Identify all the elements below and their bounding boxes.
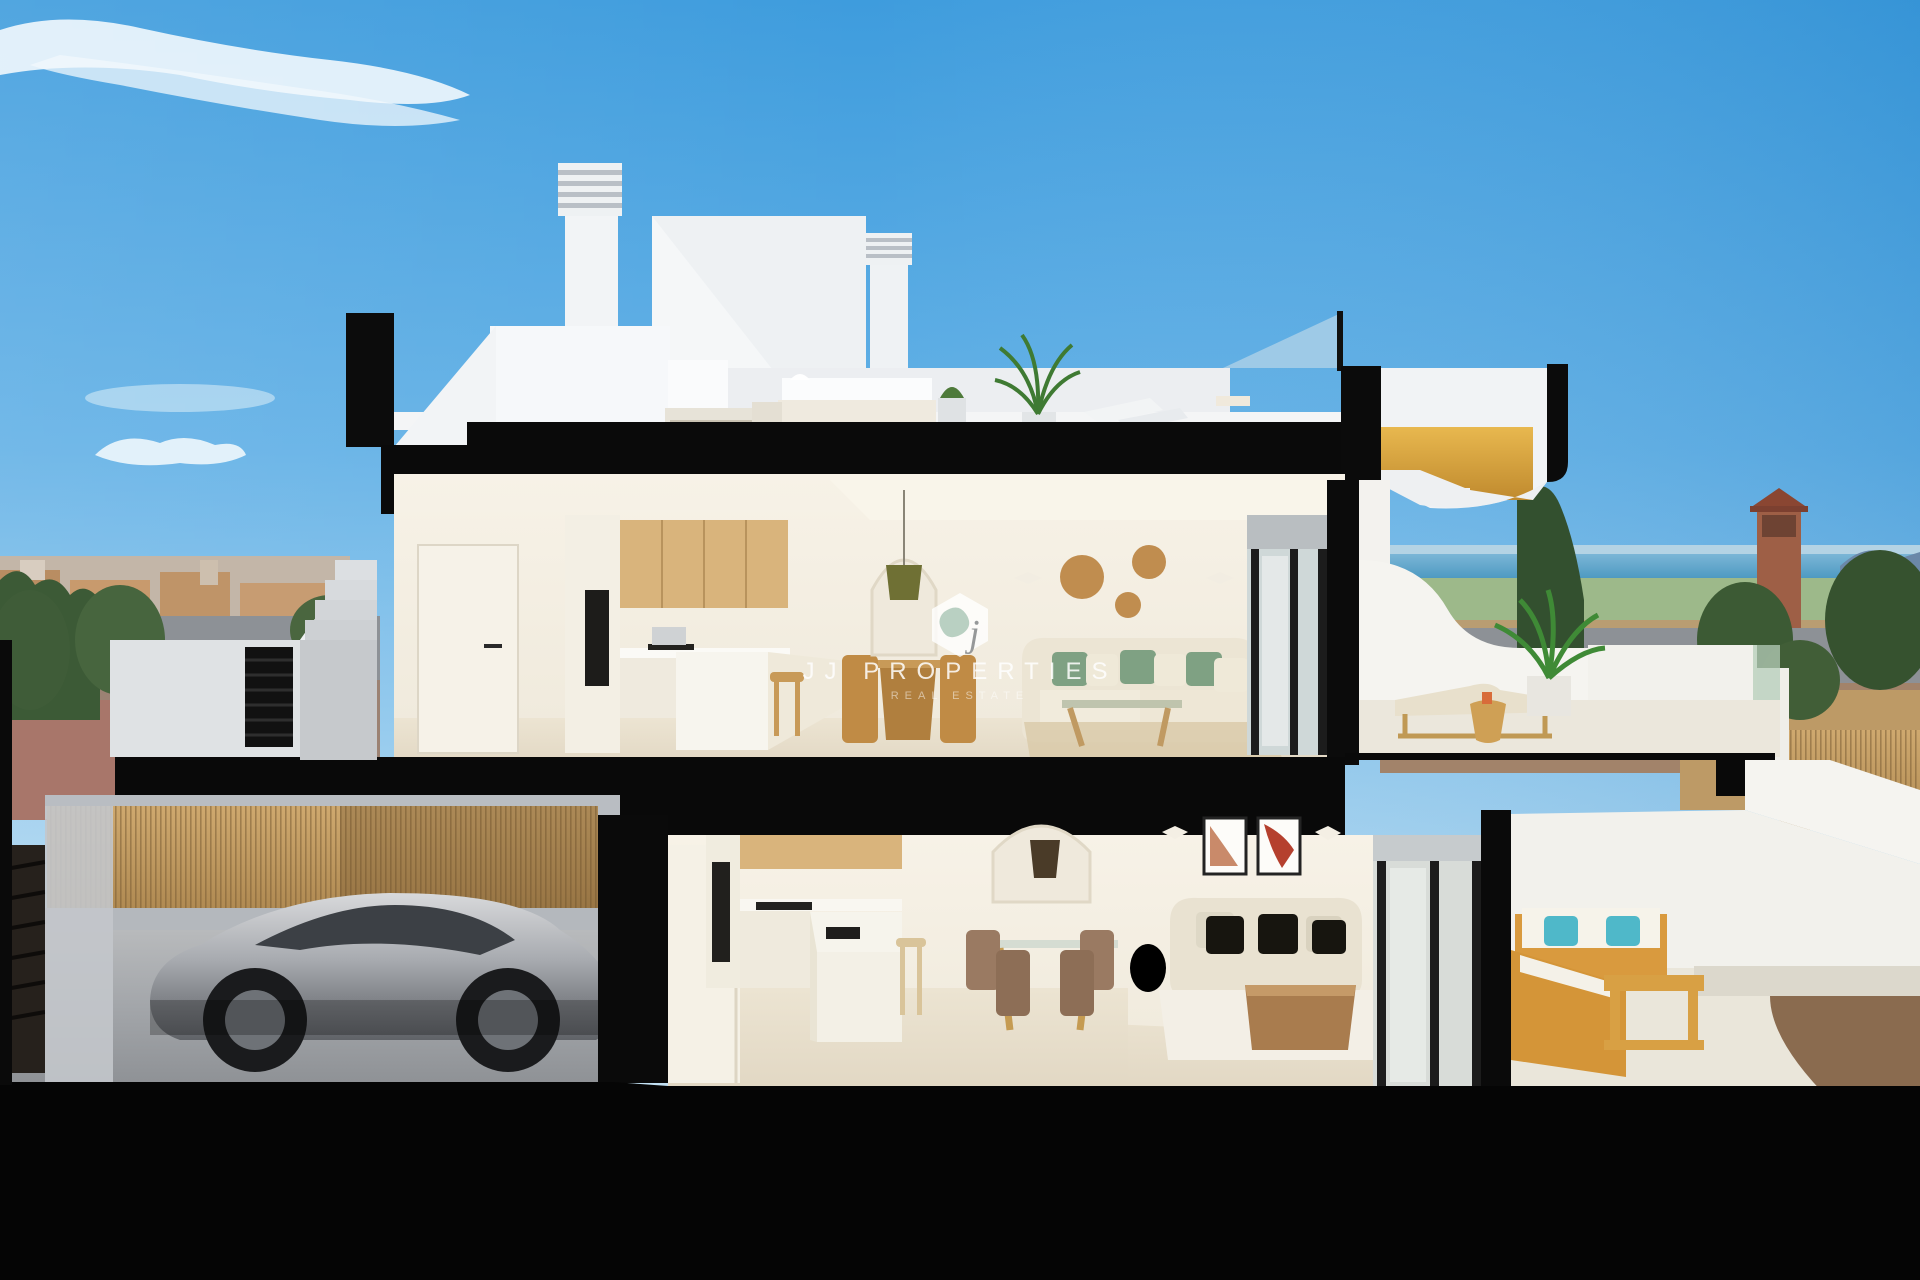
- svg-text:JJ PROPERTIES: JJ PROPERTIES: [803, 658, 1118, 685]
- svg-text:REAL ESTATE: REAL ESTATE: [891, 690, 1030, 702]
